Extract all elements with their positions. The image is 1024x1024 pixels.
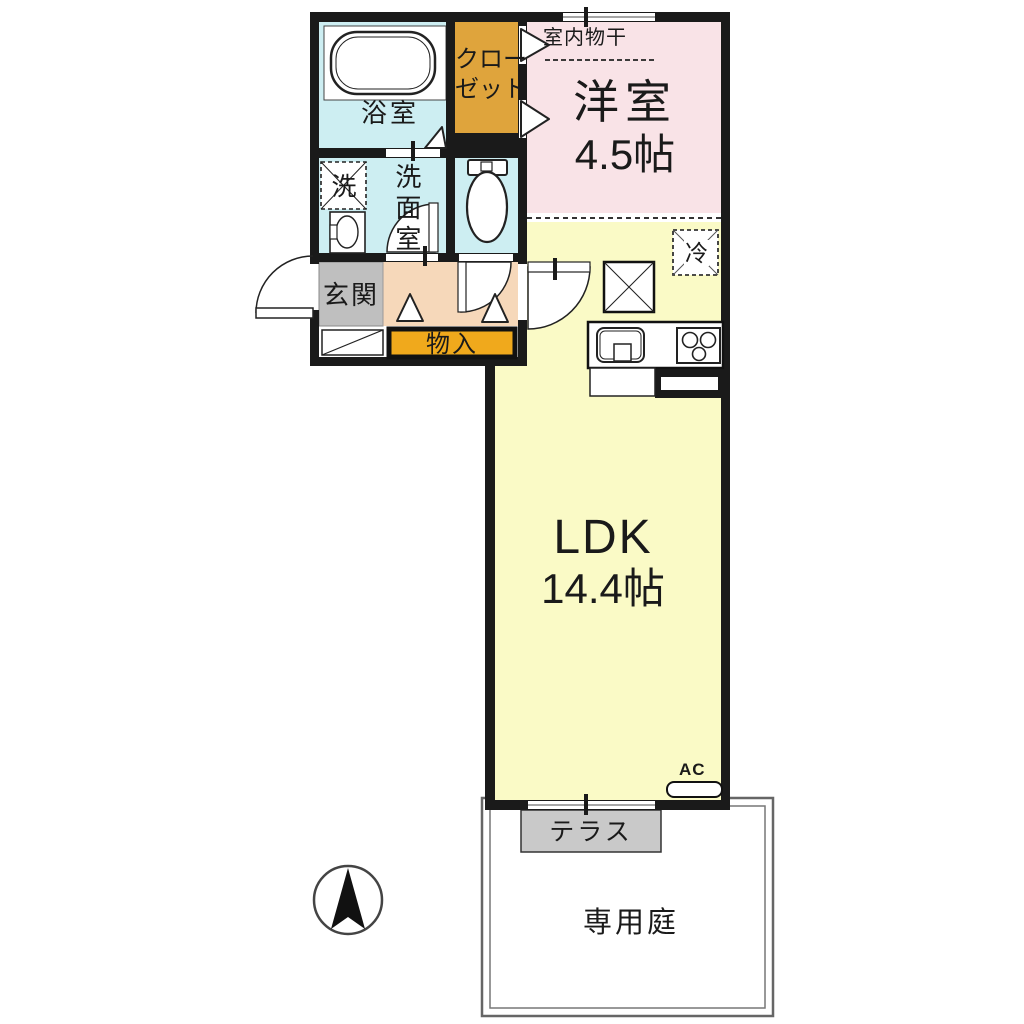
wall-washroom-toilet — [446, 158, 455, 262]
western-room-size: 4.5帖 — [547, 131, 703, 179]
toilet-door-opening — [459, 254, 513, 261]
kitchen-faucet — [614, 344, 631, 361]
entrance-label: 玄関 — [318, 281, 384, 311]
washroom-label: 洗面室 — [391, 163, 421, 256]
toilet-tank-button — [481, 162, 492, 171]
washbasin-bowl-icon — [336, 216, 358, 248]
entrance-door-leaf — [256, 308, 313, 318]
ldk-name: LDK — [523, 510, 683, 565]
washroom-door-tick — [423, 246, 427, 266]
stove-burner-3 — [693, 348, 706, 361]
compass — [314, 866, 382, 934]
terrace-label: テラス — [521, 818, 661, 847]
western-room-name: 洋室 — [547, 76, 703, 129]
floorplan-drawing — [0, 0, 1024, 1024]
floorplan-canvas: 室内物干 洋室 4.5帖 クロー ゼット 浴室 洗 洗面室 玄関 物入 冷 LD… — [0, 0, 1024, 1024]
wall-closet-toilet — [446, 133, 527, 158]
kitchen-counter-return — [590, 368, 655, 396]
wall-right — [721, 12, 730, 810]
garden-label: 専用庭 — [561, 907, 701, 940]
ac-label: AC — [679, 760, 706, 780]
ac-unit-icon — [667, 782, 722, 797]
toilet-door-leaf — [458, 262, 466, 312]
indoor-drying-label: 室内物干 — [543, 27, 627, 50]
ldk-door-leaf — [528, 262, 590, 272]
entrance-door-arc — [256, 256, 313, 313]
bathroom-door-tick — [411, 141, 415, 161]
refrigerator-label: 冷 — [684, 240, 709, 266]
kitchen-lower-slot — [661, 377, 718, 390]
toilet-bowl-icon — [467, 172, 507, 242]
closet-label-line2: ゼット — [455, 76, 518, 104]
stove-burner-1 — [683, 333, 698, 348]
top-window-tick — [584, 7, 588, 27]
ldk-size: 14.4帖 — [523, 565, 683, 613]
ldk-door-tick — [553, 258, 557, 280]
storage-label: 物入 — [389, 331, 515, 359]
wall-ldk-left — [485, 357, 495, 810]
bathtub-icon — [331, 32, 435, 94]
washroom-door-leaf — [429, 203, 438, 252]
stove-burner-2 — [701, 333, 716, 348]
wall-hallway-ldk — [518, 320, 527, 366]
washer-label: 洗 — [322, 173, 366, 202]
bathroom-label: 浴室 — [346, 99, 434, 129]
washbasin-tap — [330, 225, 337, 239]
wall-left-upper — [310, 12, 319, 264]
bottom-window-tick — [584, 794, 588, 815]
closet-label-line1: クロー — [455, 46, 518, 74]
